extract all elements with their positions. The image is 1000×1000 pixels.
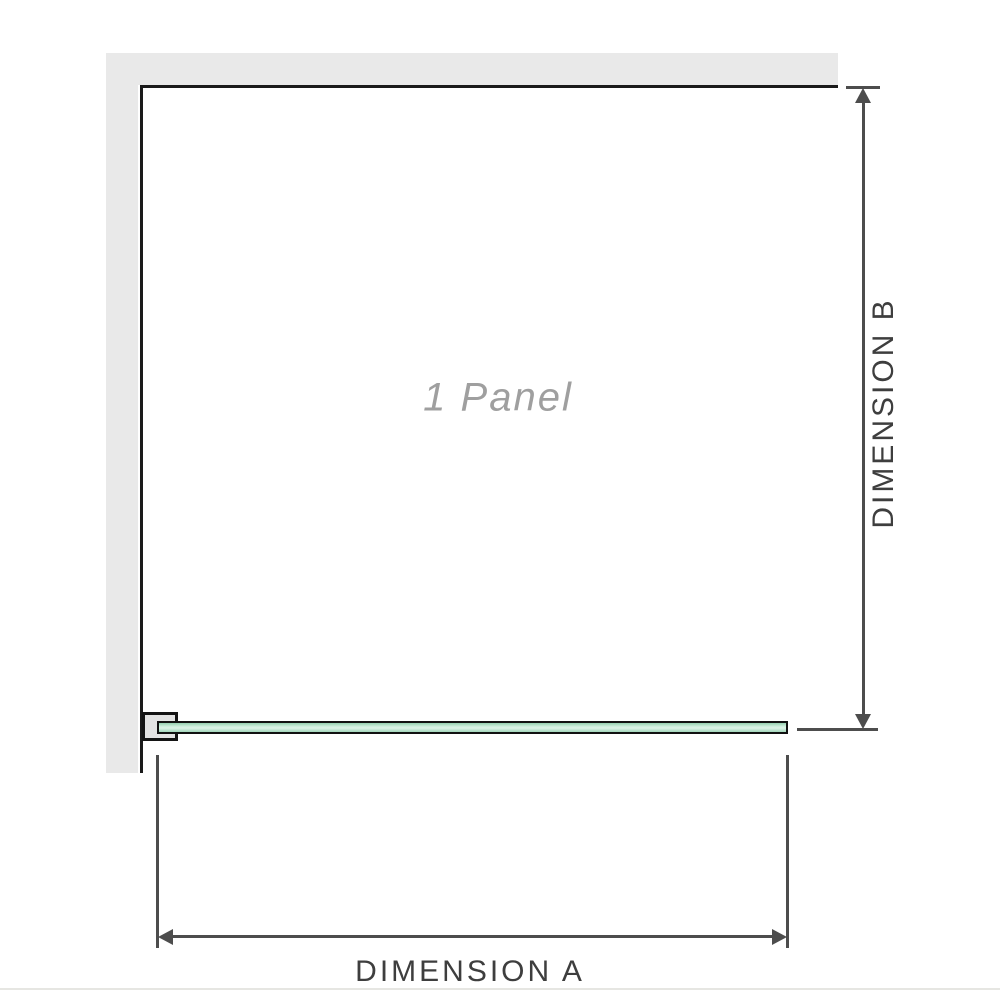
dimension-b-label: DIMENSION B: [867, 297, 901, 528]
dimension-b-arrow-down-icon: [855, 714, 871, 729]
dimension-b-arrow-up-icon: [855, 88, 871, 103]
diagram-canvas: 1 Panel DIMENSION B DIMENSION A: [0, 0, 1000, 1000]
enclosure-left-edge-line: [140, 85, 143, 773]
panel-count-label: 1 Panel: [423, 376, 573, 421]
dimension-a-label: DIMENSION A: [355, 955, 585, 989]
dimension-b-line: [862, 92, 865, 722]
dimension-a-right-extension-line: [786, 755, 789, 948]
dimension-a-arrow-left-icon: [158, 929, 173, 945]
dimension-a-left-extension-line: [156, 755, 159, 948]
wall-left: [106, 53, 138, 773]
enclosure-top-edge-line: [140, 85, 838, 88]
wall-top: [106, 53, 838, 85]
dimension-a-arrow-right-icon: [772, 929, 787, 945]
glass-panel: [157, 721, 788, 734]
dimension-a-line: [165, 935, 780, 938]
